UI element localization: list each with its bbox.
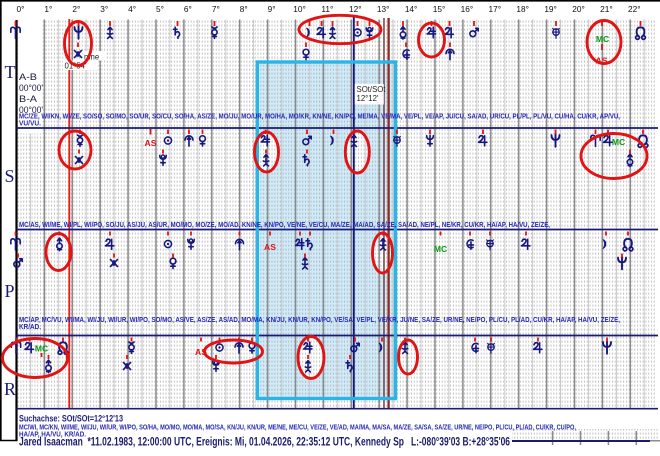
svg-text:8°: 8° — [240, 4, 248, 14]
svg-text:4°: 4° — [128, 4, 136, 14]
svg-text:L:-080°39'03 B:+28°35'06: L:-080°39'03 B:+28°35'06 — [411, 437, 510, 449]
svg-text:14°: 14° — [405, 4, 418, 14]
svg-text:00°00': 00°00' — [19, 83, 43, 93]
svg-text:MC: MC — [612, 137, 625, 147]
svg-text:11°: 11° — [321, 4, 333, 14]
svg-text:19°: 19° — [544, 4, 557, 14]
svg-text:12°12': 12°12' — [357, 94, 379, 103]
svg-text:Suchachse: SOt/SOt=12°12'13: Suchachse: SOt/SOt=12°12'13 — [19, 413, 123, 423]
svg-text:T: T — [5, 62, 16, 82]
svg-text:VU/VU.: VU/VU. — [19, 121, 41, 128]
svg-text:12°: 12° — [349, 4, 362, 14]
svg-text:AS: AS — [145, 138, 157, 148]
svg-text:5°: 5° — [156, 4, 164, 14]
svg-text:18°: 18° — [516, 4, 529, 14]
svg-text:MC/WI, MC/KN, WI/ME, WI/JU, WI: MC/WI, MC/KN, WI/ME, WI/JU, WI/UR, WI/PO… — [19, 425, 576, 432]
svg-text:20°: 20° — [572, 4, 585, 14]
svg-text:MC/AP, MC/VU, WI/MA, WI/JU, WI: MC/AP, MC/VU, WI/MA, WI/JU, WI/UR, WI/PO… — [19, 317, 620, 324]
svg-text:MC/ZE, WI/KN, WI/ZE, SO/SO, SO: MC/ZE, WI/KN, WI/ZE, SO/SO, SO/MO, SO/UR… — [19, 114, 620, 121]
svg-text:10°: 10° — [293, 4, 306, 14]
svg-text:MC: MC — [596, 34, 609, 44]
svg-text:SOt/SOt: SOt/SOt — [357, 85, 387, 94]
svg-text:R: R — [4, 379, 16, 399]
svg-text:P: P — [5, 281, 15, 301]
svg-text:22°: 22° — [628, 4, 641, 14]
svg-text:MC: MC — [434, 244, 447, 254]
svg-text:MC/AS, WI/ME, WI/PL, WI/PO, SO: MC/AS, WI/ME, WI/PL, WI/PO, SO/JU, AS/JU… — [19, 222, 550, 229]
svg-text:7°: 7° — [212, 4, 220, 14]
svg-text:1°: 1° — [44, 4, 52, 14]
svg-text:9°: 9° — [268, 4, 276, 14]
svg-text:2°: 2° — [72, 4, 80, 14]
svg-text:S: S — [5, 166, 15, 186]
svg-text:A-B: A-B — [19, 72, 37, 82]
svg-text:KR/AD.: KR/AD. — [19, 324, 41, 331]
svg-text:17°: 17° — [489, 4, 502, 14]
svg-text:16°: 16° — [461, 4, 474, 14]
svg-text:MC: MC — [35, 344, 48, 354]
svg-text:21°: 21° — [600, 4, 613, 14]
svg-text:13°: 13° — [377, 4, 390, 14]
svg-text:B-A: B-A — [19, 94, 38, 104]
svg-text:3°: 3° — [100, 4, 108, 14]
svg-text:0°: 0° — [17, 4, 25, 14]
svg-text:15°: 15° — [433, 4, 446, 14]
svg-text:6°: 6° — [184, 4, 192, 14]
svg-text:Jared Isaacman *11.02.1983, 1: Jared Isaacman *11.02.1983, 12:00:00 UTC… — [19, 437, 404, 449]
svg-text:AS: AS — [264, 242, 276, 252]
